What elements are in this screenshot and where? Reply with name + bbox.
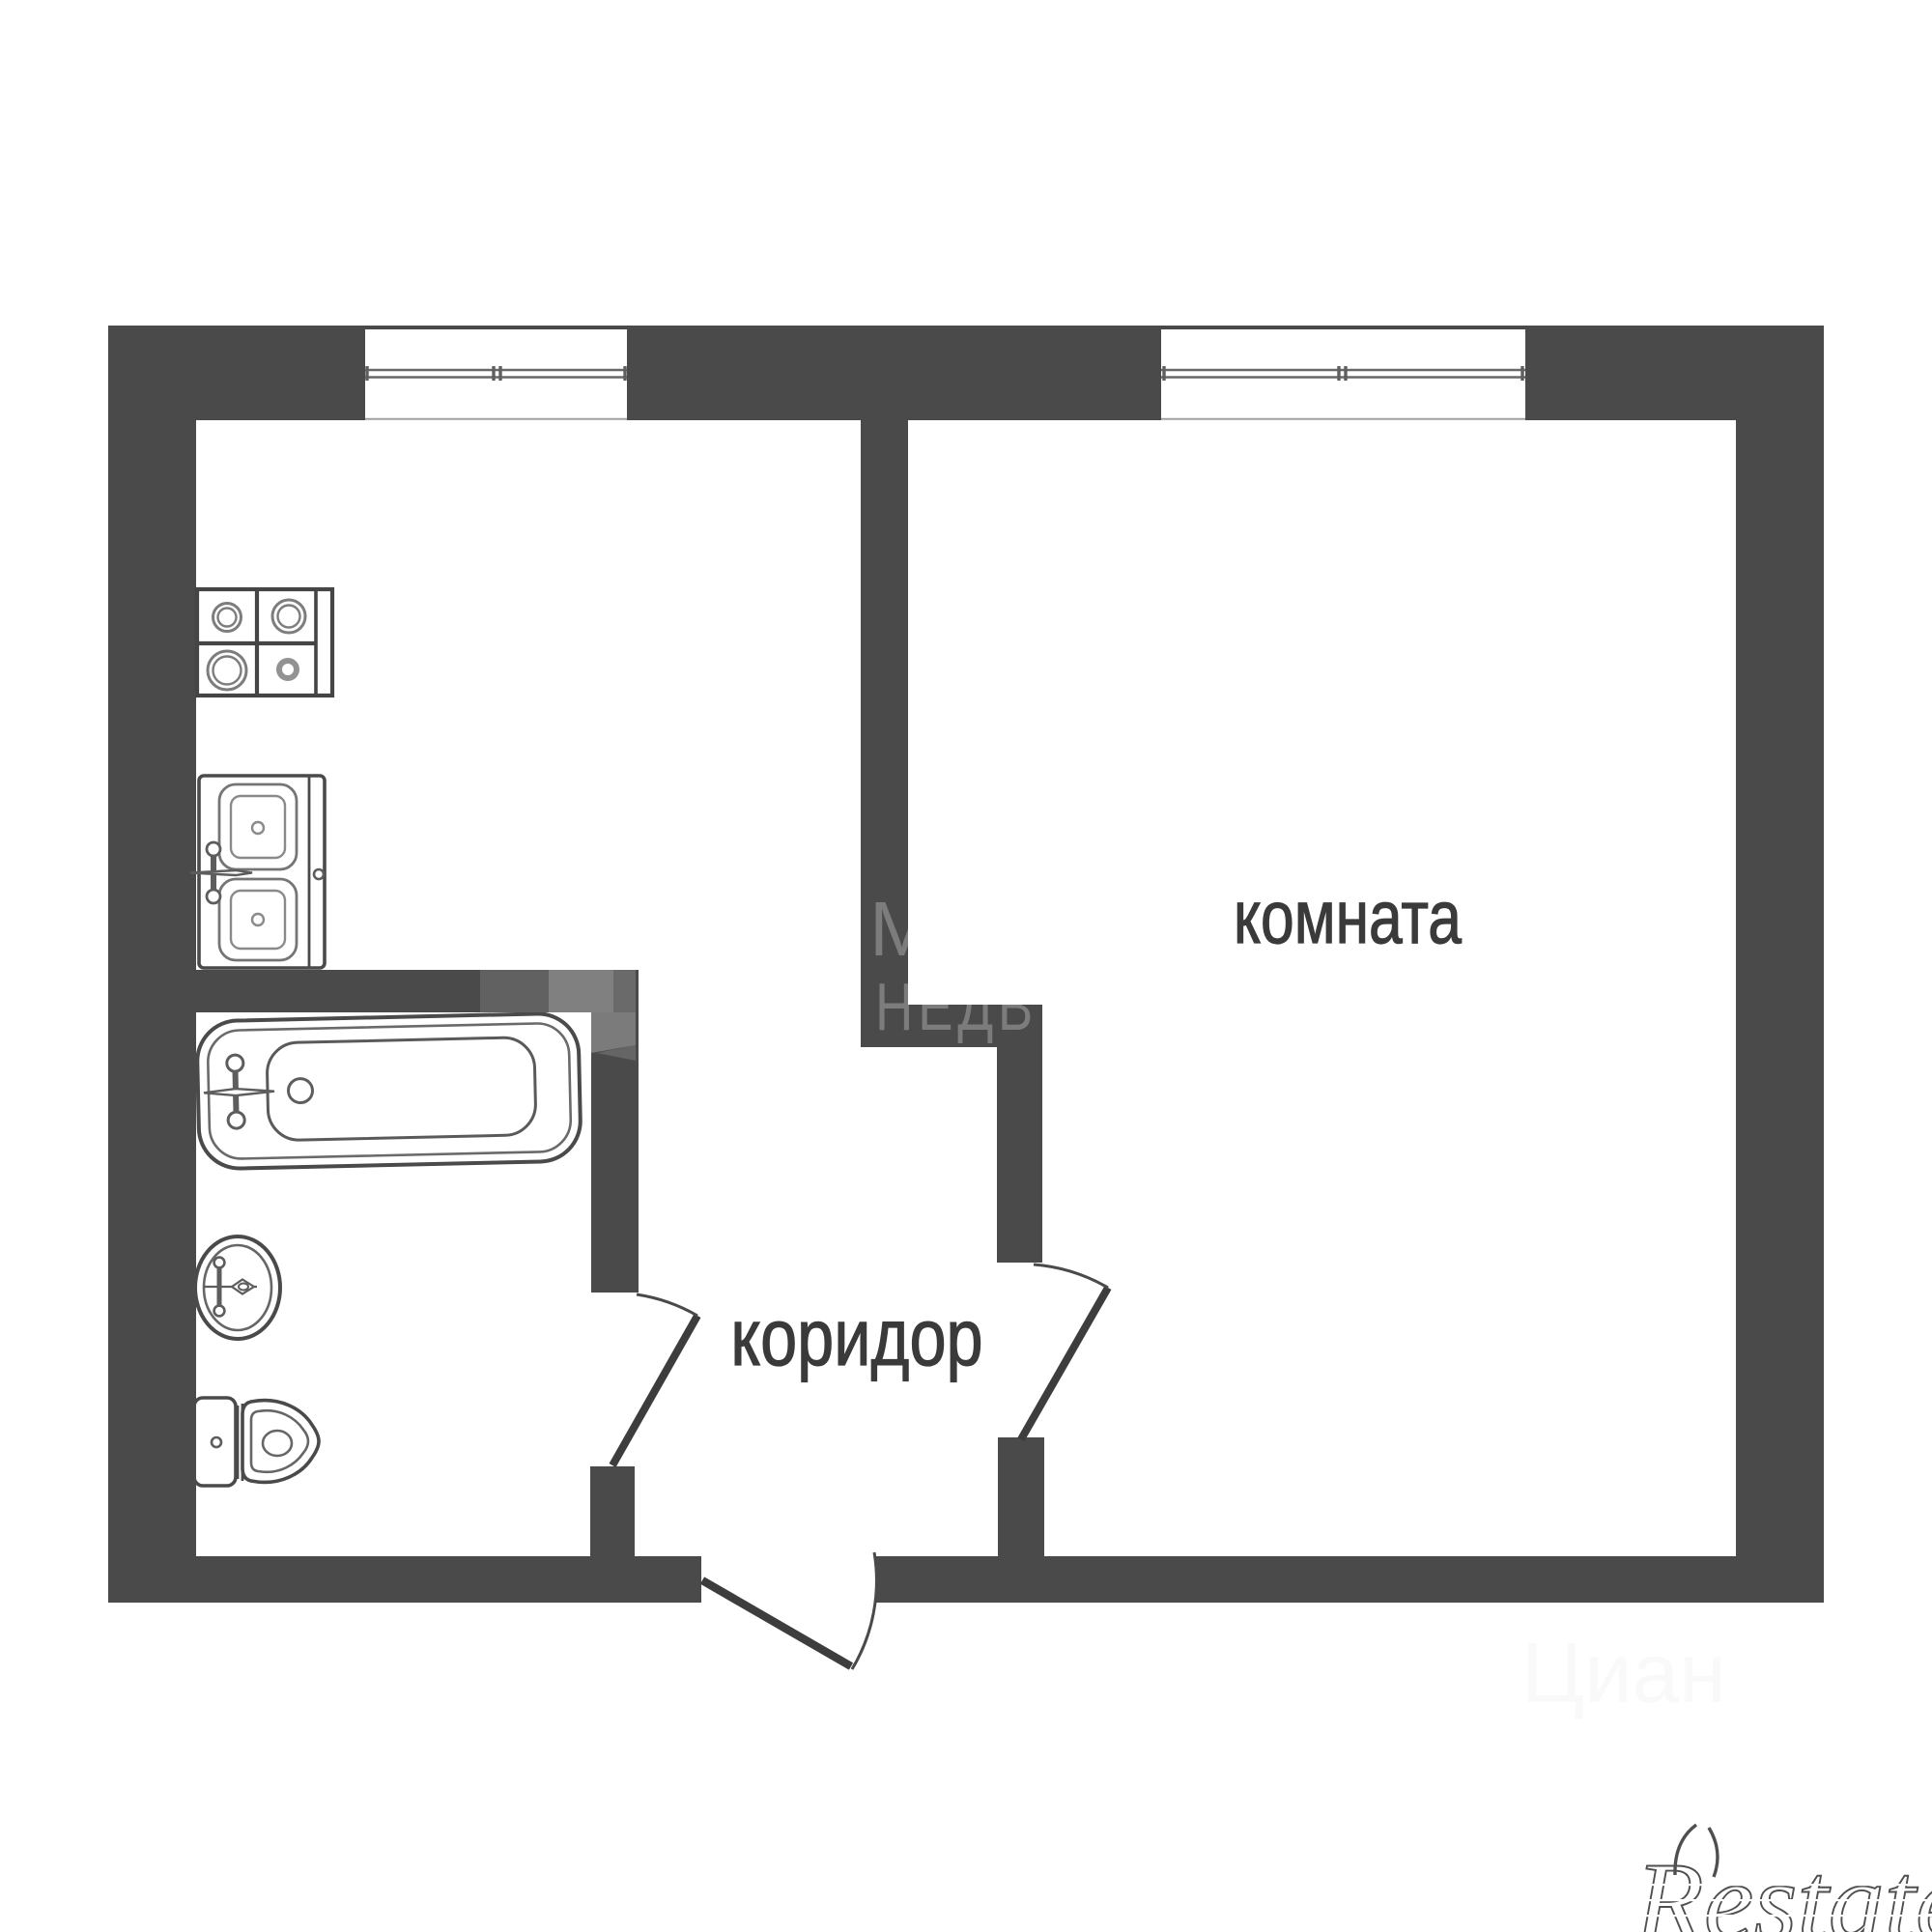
svg-text:комната: комната [1234, 874, 1463, 958]
svg-text:коридор: коридор [730, 1293, 982, 1383]
svg-text:М: М [869, 886, 934, 972]
svg-text:Циан: Циан [1521, 1625, 1726, 1720]
svg-text:Restate: Restate [1634, 1840, 1932, 1932]
svg-text:НЕДВ: НЕДВ [875, 970, 1037, 1045]
